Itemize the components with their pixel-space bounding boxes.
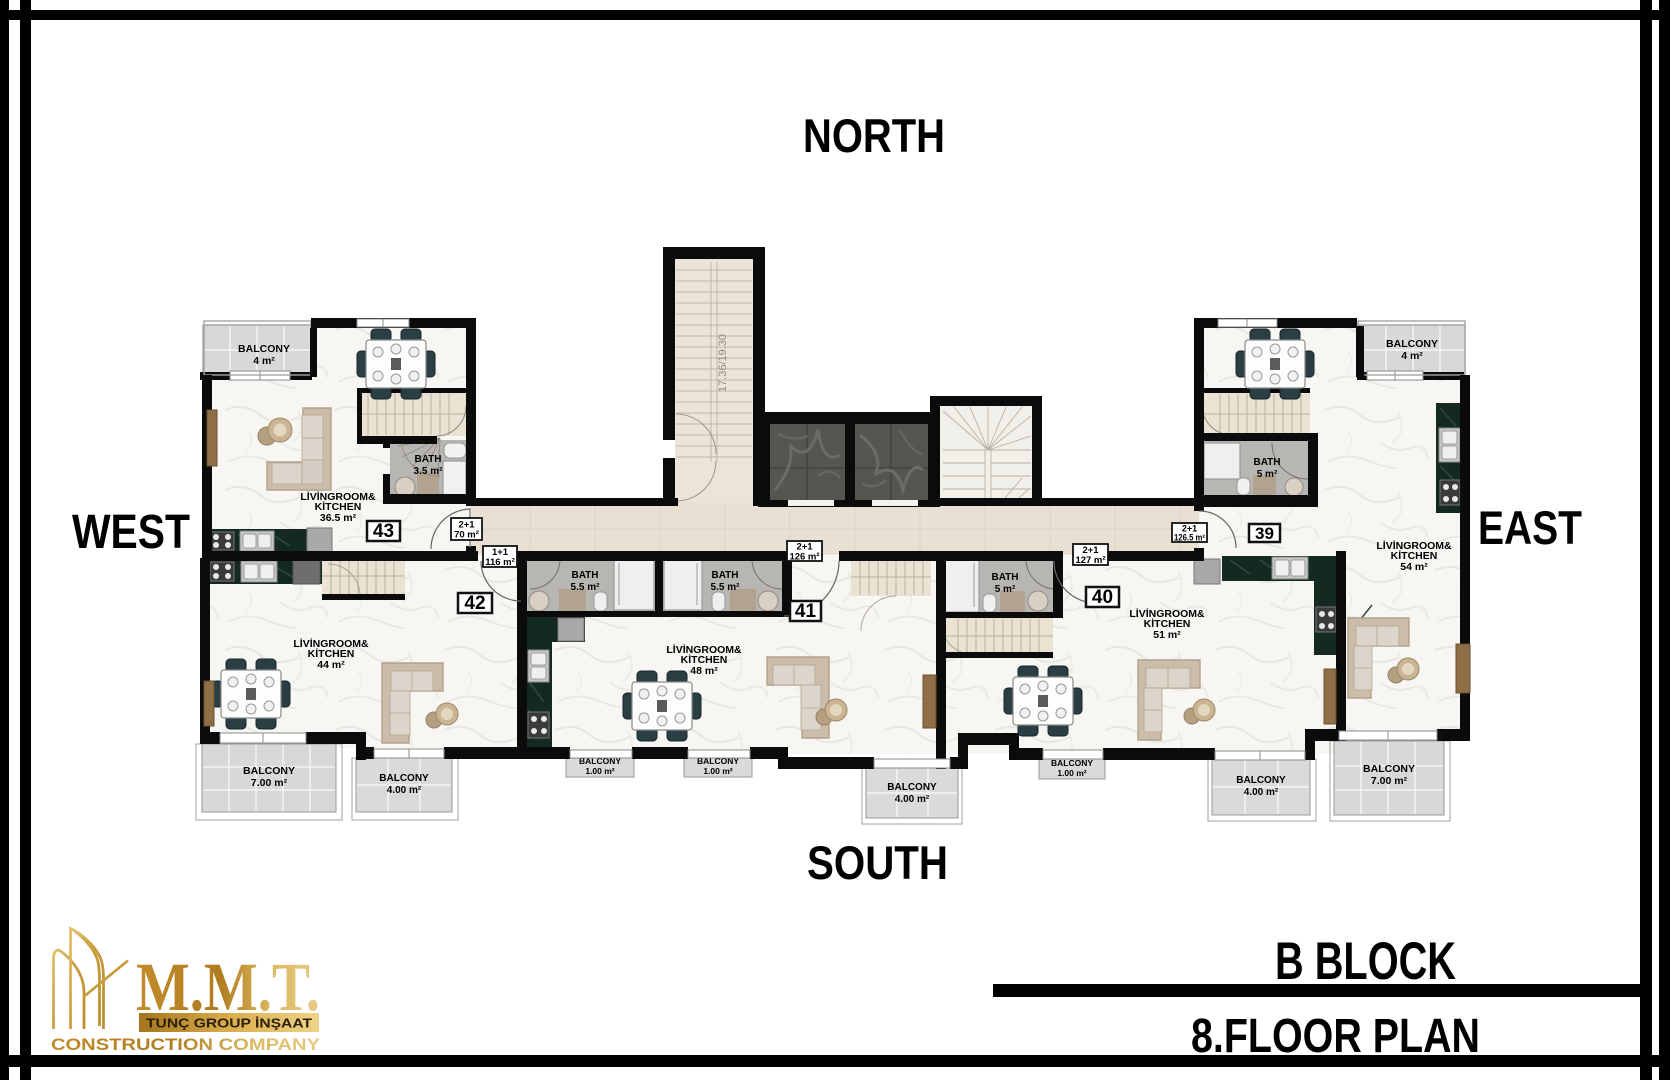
svg-text:17.36/19.30: 17.36/19.30 — [717, 334, 729, 392]
svg-text:51 m²: 51 m² — [1153, 629, 1181, 641]
svg-text:BALCONY: BALCONY — [1236, 775, 1286, 786]
svg-text:5.5 m²: 5.5 m² — [711, 582, 741, 593]
svg-text:36.5 m²: 36.5 m² — [320, 512, 357, 524]
svg-text:BATH: BATH — [711, 570, 738, 581]
svg-text:44 m²: 44 m² — [317, 659, 345, 671]
svg-text:4.00 m²: 4.00 m² — [1244, 787, 1279, 798]
svg-text:4 m²: 4 m² — [253, 355, 275, 367]
svg-text:B BLOCK: B BLOCK — [1275, 932, 1456, 991]
svg-text:8.FLOOR PLAN: 8.FLOOR PLAN — [1191, 1010, 1480, 1063]
svg-text:116 m²: 116 m² — [485, 557, 515, 568]
svg-text:BALCONY: BALCONY — [1363, 763, 1415, 775]
svg-text:39: 39 — [1255, 524, 1274, 543]
svg-text:1.00 m²: 1.00 m² — [703, 766, 732, 776]
svg-text:42: 42 — [464, 593, 485, 614]
svg-text:BATH: BATH — [571, 570, 598, 581]
svg-text:7.00 m²: 7.00 m² — [1371, 775, 1408, 787]
svg-text:CONSTRUCTION COMPANY: CONSTRUCTION COMPANY — [51, 1035, 321, 1054]
svg-text:1.00 m²: 1.00 m² — [1057, 768, 1086, 778]
svg-text:126.5 m²: 126.5 m² — [1174, 533, 1205, 543]
svg-text:EAST: EAST — [1478, 501, 1582, 554]
svg-text:BALCONY: BALCONY — [1386, 338, 1438, 350]
svg-text:70 m²: 70 m² — [454, 530, 479, 541]
svg-text:WEST: WEST — [72, 506, 190, 559]
svg-text:5.5 m²: 5.5 m² — [571, 582, 601, 593]
svg-text:TUNÇ GROUP İNŞAAT: TUNÇ GROUP İNŞAAT — [146, 1016, 312, 1031]
svg-text:BATH: BATH — [414, 454, 441, 465]
svg-text:54 m²: 54 m² — [1400, 561, 1428, 573]
svg-text:BALCONY: BALCONY — [887, 782, 937, 793]
svg-text:BALCONY: BALCONY — [243, 765, 295, 777]
svg-text:41: 41 — [795, 601, 817, 622]
svg-text:5 m²: 5 m² — [1257, 469, 1278, 480]
svg-text:BALCONY: BALCONY — [238, 343, 290, 355]
svg-text:BATH: BATH — [1253, 457, 1280, 468]
svg-text:4 m²: 4 m² — [1401, 350, 1423, 362]
svg-text:SOUTH: SOUTH — [807, 836, 948, 889]
svg-text:5 m²: 5 m² — [995, 584, 1016, 595]
svg-text:48 m²: 48 m² — [690, 665, 718, 677]
svg-text:40: 40 — [1092, 587, 1113, 608]
svg-text:4.00 m²: 4.00 m² — [387, 785, 422, 796]
svg-text:4.00 m²: 4.00 m² — [895, 794, 930, 805]
svg-text:1.00 m²: 1.00 m² — [585, 766, 614, 776]
svg-text:BALCONY: BALCONY — [379, 773, 429, 784]
svg-text:127 m²: 127 m² — [1075, 555, 1105, 566]
svg-text:126 m²: 126 m² — [789, 552, 819, 563]
svg-text:BATH: BATH — [991, 572, 1018, 583]
svg-text:NORTH: NORTH — [803, 109, 945, 162]
svg-text:3.5 m²: 3.5 m² — [414, 466, 444, 477]
svg-text:43: 43 — [373, 521, 394, 542]
svg-text:7.00 m²: 7.00 m² — [251, 777, 288, 789]
